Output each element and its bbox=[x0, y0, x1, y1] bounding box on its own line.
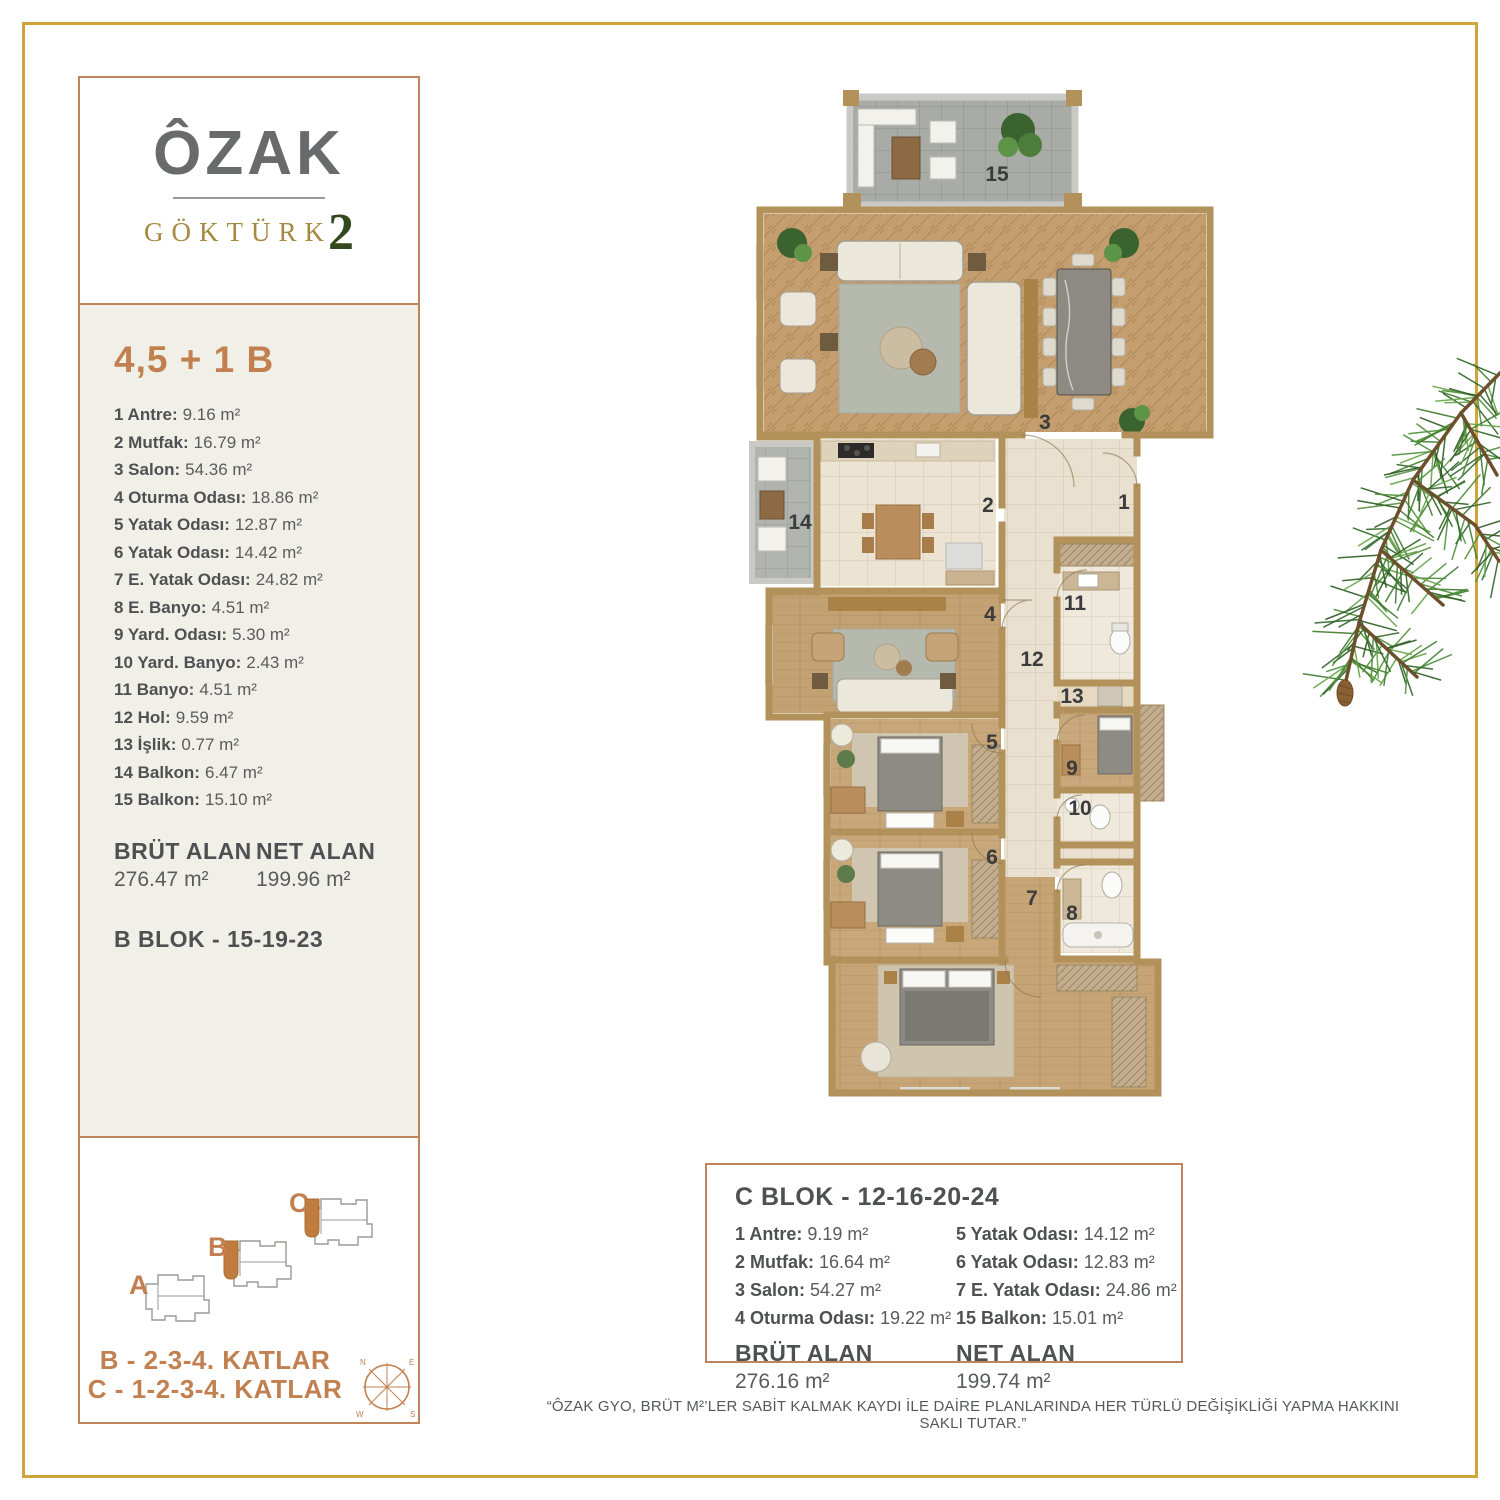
room-label-13: 13 bbox=[1060, 685, 1083, 708]
area-summary: BRÜT ALAN 276.47 m² NET ALAN 199.96 m² bbox=[114, 838, 398, 892]
dresser bbox=[831, 787, 865, 813]
dining-chair bbox=[1043, 338, 1056, 356]
room-list-item: 5 Yatak Odası:14.12 m² bbox=[956, 1220, 1177, 1248]
pillar bbox=[843, 90, 859, 106]
building-c-label: C bbox=[289, 1188, 309, 1218]
balcony-table bbox=[892, 137, 920, 179]
room-list-item: 6 Yatak Odası:12.83 m² bbox=[956, 1248, 1177, 1276]
nightstand bbox=[997, 971, 1010, 984]
compass-s: S bbox=[410, 1410, 415, 1419]
pouf bbox=[837, 750, 855, 768]
room-label-3: 3 bbox=[1039, 411, 1051, 434]
room-list-item: 14 Balkon:6.47 m² bbox=[114, 759, 398, 787]
disclaimer-text: “ÔZAK GYO, BRÜT M²’LER SABİT KALMAK KAYD… bbox=[545, 1398, 1401, 1432]
unit-info-panel: 4,5 + 1 B 1 Antre:9.16 m² 2 Mutfak:16.79… bbox=[78, 303, 420, 1138]
side-table bbox=[968, 253, 986, 271]
room-list-item: 7 E. Yatak Odası:24.86 m² bbox=[956, 1276, 1177, 1304]
room-label-10: 10 bbox=[1068, 797, 1091, 820]
kitchen-chair bbox=[922, 513, 934, 529]
c-block-area-summary: BRÜT ALAN 276.16 m² NET ALAN 199.74 m² bbox=[735, 1340, 1181, 1394]
desk bbox=[886, 813, 934, 828]
logo-subtitle: GÖKTÜRK2 bbox=[144, 207, 354, 259]
building-a-label: A bbox=[129, 1270, 149, 1300]
pillow bbox=[1100, 718, 1130, 730]
balcony-chair bbox=[758, 527, 786, 551]
appliance bbox=[946, 543, 982, 569]
room-list-item: 4 Oturma Odası:18.86 m² bbox=[114, 484, 398, 512]
c-block-panel: C BLOK - 12-16-20-24 1 Antre:9.19 m² 2 M… bbox=[705, 1163, 1183, 1363]
toilet bbox=[1102, 872, 1122, 898]
balcony-table bbox=[760, 491, 784, 519]
room-list-item: 3 Salon:54.36 m² bbox=[114, 456, 398, 484]
pine-branch-decoration bbox=[1265, 355, 1500, 775]
armchair bbox=[861, 1042, 891, 1072]
floor-plan: 1 2 3 4 5 6 7 8 9 10 11 12 13 14 15 bbox=[700, 85, 1215, 1115]
side-table bbox=[812, 673, 828, 689]
salon-sofa-2 bbox=[967, 282, 1021, 415]
armchair bbox=[831, 839, 853, 861]
c-block-left-column: 1 Antre:9.19 m² 2 Mutfak:16.64 m² 3 Salo… bbox=[735, 1220, 956, 1332]
dining-chair bbox=[1043, 308, 1056, 326]
dining-chair bbox=[1072, 254, 1094, 266]
pillow bbox=[881, 739, 939, 753]
room-list-item: 1 Antre:9.16 m² bbox=[114, 401, 398, 429]
dining-chair bbox=[1112, 278, 1125, 296]
logo: ÔZAK GÖKTÜRK2 bbox=[78, 76, 420, 305]
c-block-right-column: 5 Yatak Odası:14.12 m² 6 Yatak Odası:12.… bbox=[956, 1220, 1177, 1332]
balcony-chair bbox=[930, 157, 956, 179]
toilet bbox=[1110, 628, 1130, 654]
room-label-14: 14 bbox=[788, 511, 812, 534]
pillar bbox=[1066, 90, 1082, 106]
room-list-item: 10 Yard. Banyo:2.43 m² bbox=[114, 649, 398, 677]
room-list-item: 3 Salon:54.27 m² bbox=[735, 1276, 956, 1304]
gross-area: BRÜT ALAN 276.47 m² bbox=[114, 838, 256, 892]
kitchen bbox=[819, 439, 996, 586]
side-table bbox=[820, 253, 838, 271]
gross-area: BRÜT ALAN 276.16 m² bbox=[735, 1340, 956, 1394]
console bbox=[828, 597, 946, 611]
dining-chair bbox=[1043, 278, 1056, 296]
kitchen-chair bbox=[922, 537, 934, 553]
balcony-15 bbox=[843, 90, 1082, 209]
balcony-chair bbox=[930, 121, 956, 143]
room-label-15: 15 bbox=[985, 163, 1009, 186]
pillow bbox=[949, 971, 991, 987]
room-list-item: 15 Balkon:15.10 m² bbox=[114, 786, 398, 814]
dining-chair bbox=[1072, 398, 1094, 410]
cabinet bbox=[946, 571, 994, 585]
dining-chair bbox=[1043, 368, 1056, 386]
room-label-11: 11 bbox=[1064, 592, 1087, 615]
pillow bbox=[881, 854, 939, 868]
kitchen-table bbox=[876, 505, 920, 559]
room-list-item: 15 Balkon:15.01 m² bbox=[956, 1304, 1177, 1332]
room-list-item: 8 E. Banyo:4.51 m² bbox=[114, 594, 398, 622]
floors-c-line: C - 1-2-3-4. KATLAR bbox=[80, 1375, 350, 1404]
bedroom-6 bbox=[823, 834, 1001, 957]
salon bbox=[756, 214, 1206, 434]
room-label-6: 6 bbox=[986, 846, 998, 869]
logo-subtitle-text: GÖKTÜRK bbox=[144, 219, 332, 246]
room-list-item: 2 Mutfak:16.64 m² bbox=[735, 1248, 956, 1276]
armchair bbox=[780, 359, 816, 393]
compass-n: N bbox=[360, 1358, 366, 1367]
net-area: NET ALAN 199.74 m² bbox=[956, 1340, 1177, 1394]
pine-needles bbox=[1303, 358, 1500, 696]
coffee-table bbox=[874, 644, 900, 670]
sidebar: ÔZAK GÖKTÜRK2 4,5 + 1 B 1 Antre:9.16 m² … bbox=[78, 76, 420, 1424]
armchair bbox=[926, 633, 958, 661]
floors-b-line: B - 2-3-4. KATLAR bbox=[80, 1346, 350, 1375]
sink bbox=[1078, 574, 1098, 587]
room-label-12: 12 bbox=[1020, 648, 1043, 671]
console bbox=[1024, 279, 1038, 418]
logo-wordmark: ÔZAK bbox=[153, 123, 345, 185]
room-list-item: 13 İşlik:0.77 m² bbox=[114, 731, 398, 759]
room-label-2: 2 bbox=[982, 494, 994, 517]
balcony-sofa bbox=[858, 109, 916, 125]
room-list-item: 1 Antre:9.19 m² bbox=[735, 1220, 956, 1248]
pouf bbox=[837, 865, 855, 883]
side-table bbox=[946, 926, 964, 942]
dresser bbox=[831, 902, 865, 928]
coffee-table bbox=[896, 660, 912, 676]
room-list-item: 11 Banyo:4.51 m² bbox=[114, 676, 398, 704]
desk bbox=[886, 928, 934, 943]
room-list-item: 4 Oturma Odası:19.22 m² bbox=[735, 1304, 956, 1332]
side-table bbox=[946, 811, 964, 827]
room-list-item: 5 Yatak Odası:12.87 m² bbox=[114, 511, 398, 539]
building-a bbox=[146, 1275, 209, 1321]
armchair bbox=[831, 724, 853, 746]
building-b-label: B bbox=[208, 1232, 228, 1262]
sitting-room-4 bbox=[765, 594, 1001, 713]
unit-type-title: 4,5 + 1 B bbox=[114, 339, 398, 381]
building-b bbox=[224, 1241, 291, 1287]
room-label-5: 5 bbox=[986, 731, 998, 754]
coffee-table bbox=[910, 349, 936, 375]
kitchen-sink bbox=[916, 443, 940, 457]
armchair bbox=[780, 292, 816, 326]
side-table bbox=[820, 333, 838, 351]
dining-table bbox=[1057, 269, 1111, 395]
room-list-item: 9 Yard. Odası:5.30 m² bbox=[114, 621, 398, 649]
site-plan-panel: A B C N E W S B - 2-3-4. KATLAR C - 1-2-… bbox=[78, 1136, 420, 1424]
c-block-title: C BLOK - 12-16-20-24 bbox=[735, 1183, 1181, 1212]
compass-e: E bbox=[409, 1358, 414, 1367]
sofa bbox=[837, 679, 953, 713]
c-block-room-lists: 1 Antre:9.19 m² 2 Mutfak:16.64 m² 3 Salo… bbox=[735, 1220, 1181, 1332]
room-label-9: 9 bbox=[1066, 757, 1078, 780]
pine-cone bbox=[1337, 680, 1353, 706]
toilet bbox=[1090, 805, 1110, 829]
room-list: 1 Antre:9.16 m² 2 Mutfak:16.79 m² 3 Salo… bbox=[114, 401, 398, 814]
floors-caption: B - 2-3-4. KATLAR C - 1-2-3-4. KATLAR bbox=[80, 1346, 350, 1404]
block-floors-line: B BLOK - 15-19-23 bbox=[114, 926, 398, 953]
room-list-item: 6 Yatak Odası:14.42 m² bbox=[114, 539, 398, 567]
room-label-8: 8 bbox=[1066, 902, 1078, 925]
brochure-page: ÔZAK GÖKTÜRK2 4,5 + 1 B 1 Antre:9.16 m² … bbox=[0, 0, 1500, 1500]
room-label-7: 7 bbox=[1026, 887, 1038, 910]
dining-chair bbox=[1112, 308, 1125, 326]
kitchen-chair bbox=[862, 537, 874, 553]
compass-rose bbox=[363, 1363, 411, 1411]
room-label-4: 4 bbox=[984, 603, 996, 626]
side-table bbox=[940, 673, 956, 689]
pillow bbox=[903, 971, 945, 987]
dining-chair bbox=[1112, 368, 1125, 386]
nightstand bbox=[884, 971, 897, 984]
kitchen-chair bbox=[862, 513, 874, 529]
room-label-1: 1 bbox=[1118, 491, 1130, 514]
room-list-item: 2 Mutfak:16.79 m² bbox=[114, 429, 398, 457]
building-c bbox=[305, 1199, 372, 1245]
room-list-item: 7 E. Yatak Odası:24.82 m² bbox=[114, 566, 398, 594]
compass-w: W bbox=[356, 1410, 364, 1419]
balcony-chair bbox=[758, 457, 786, 481]
logo-number: 2 bbox=[328, 207, 354, 259]
blanket bbox=[905, 991, 989, 1041]
room-list-item: 12 Hol:9.59 m² bbox=[114, 704, 398, 732]
net-area: NET ALAN 199.96 m² bbox=[256, 838, 398, 892]
armchair bbox=[812, 633, 844, 661]
logo-divider bbox=[173, 197, 325, 199]
dining-chair bbox=[1112, 338, 1125, 356]
